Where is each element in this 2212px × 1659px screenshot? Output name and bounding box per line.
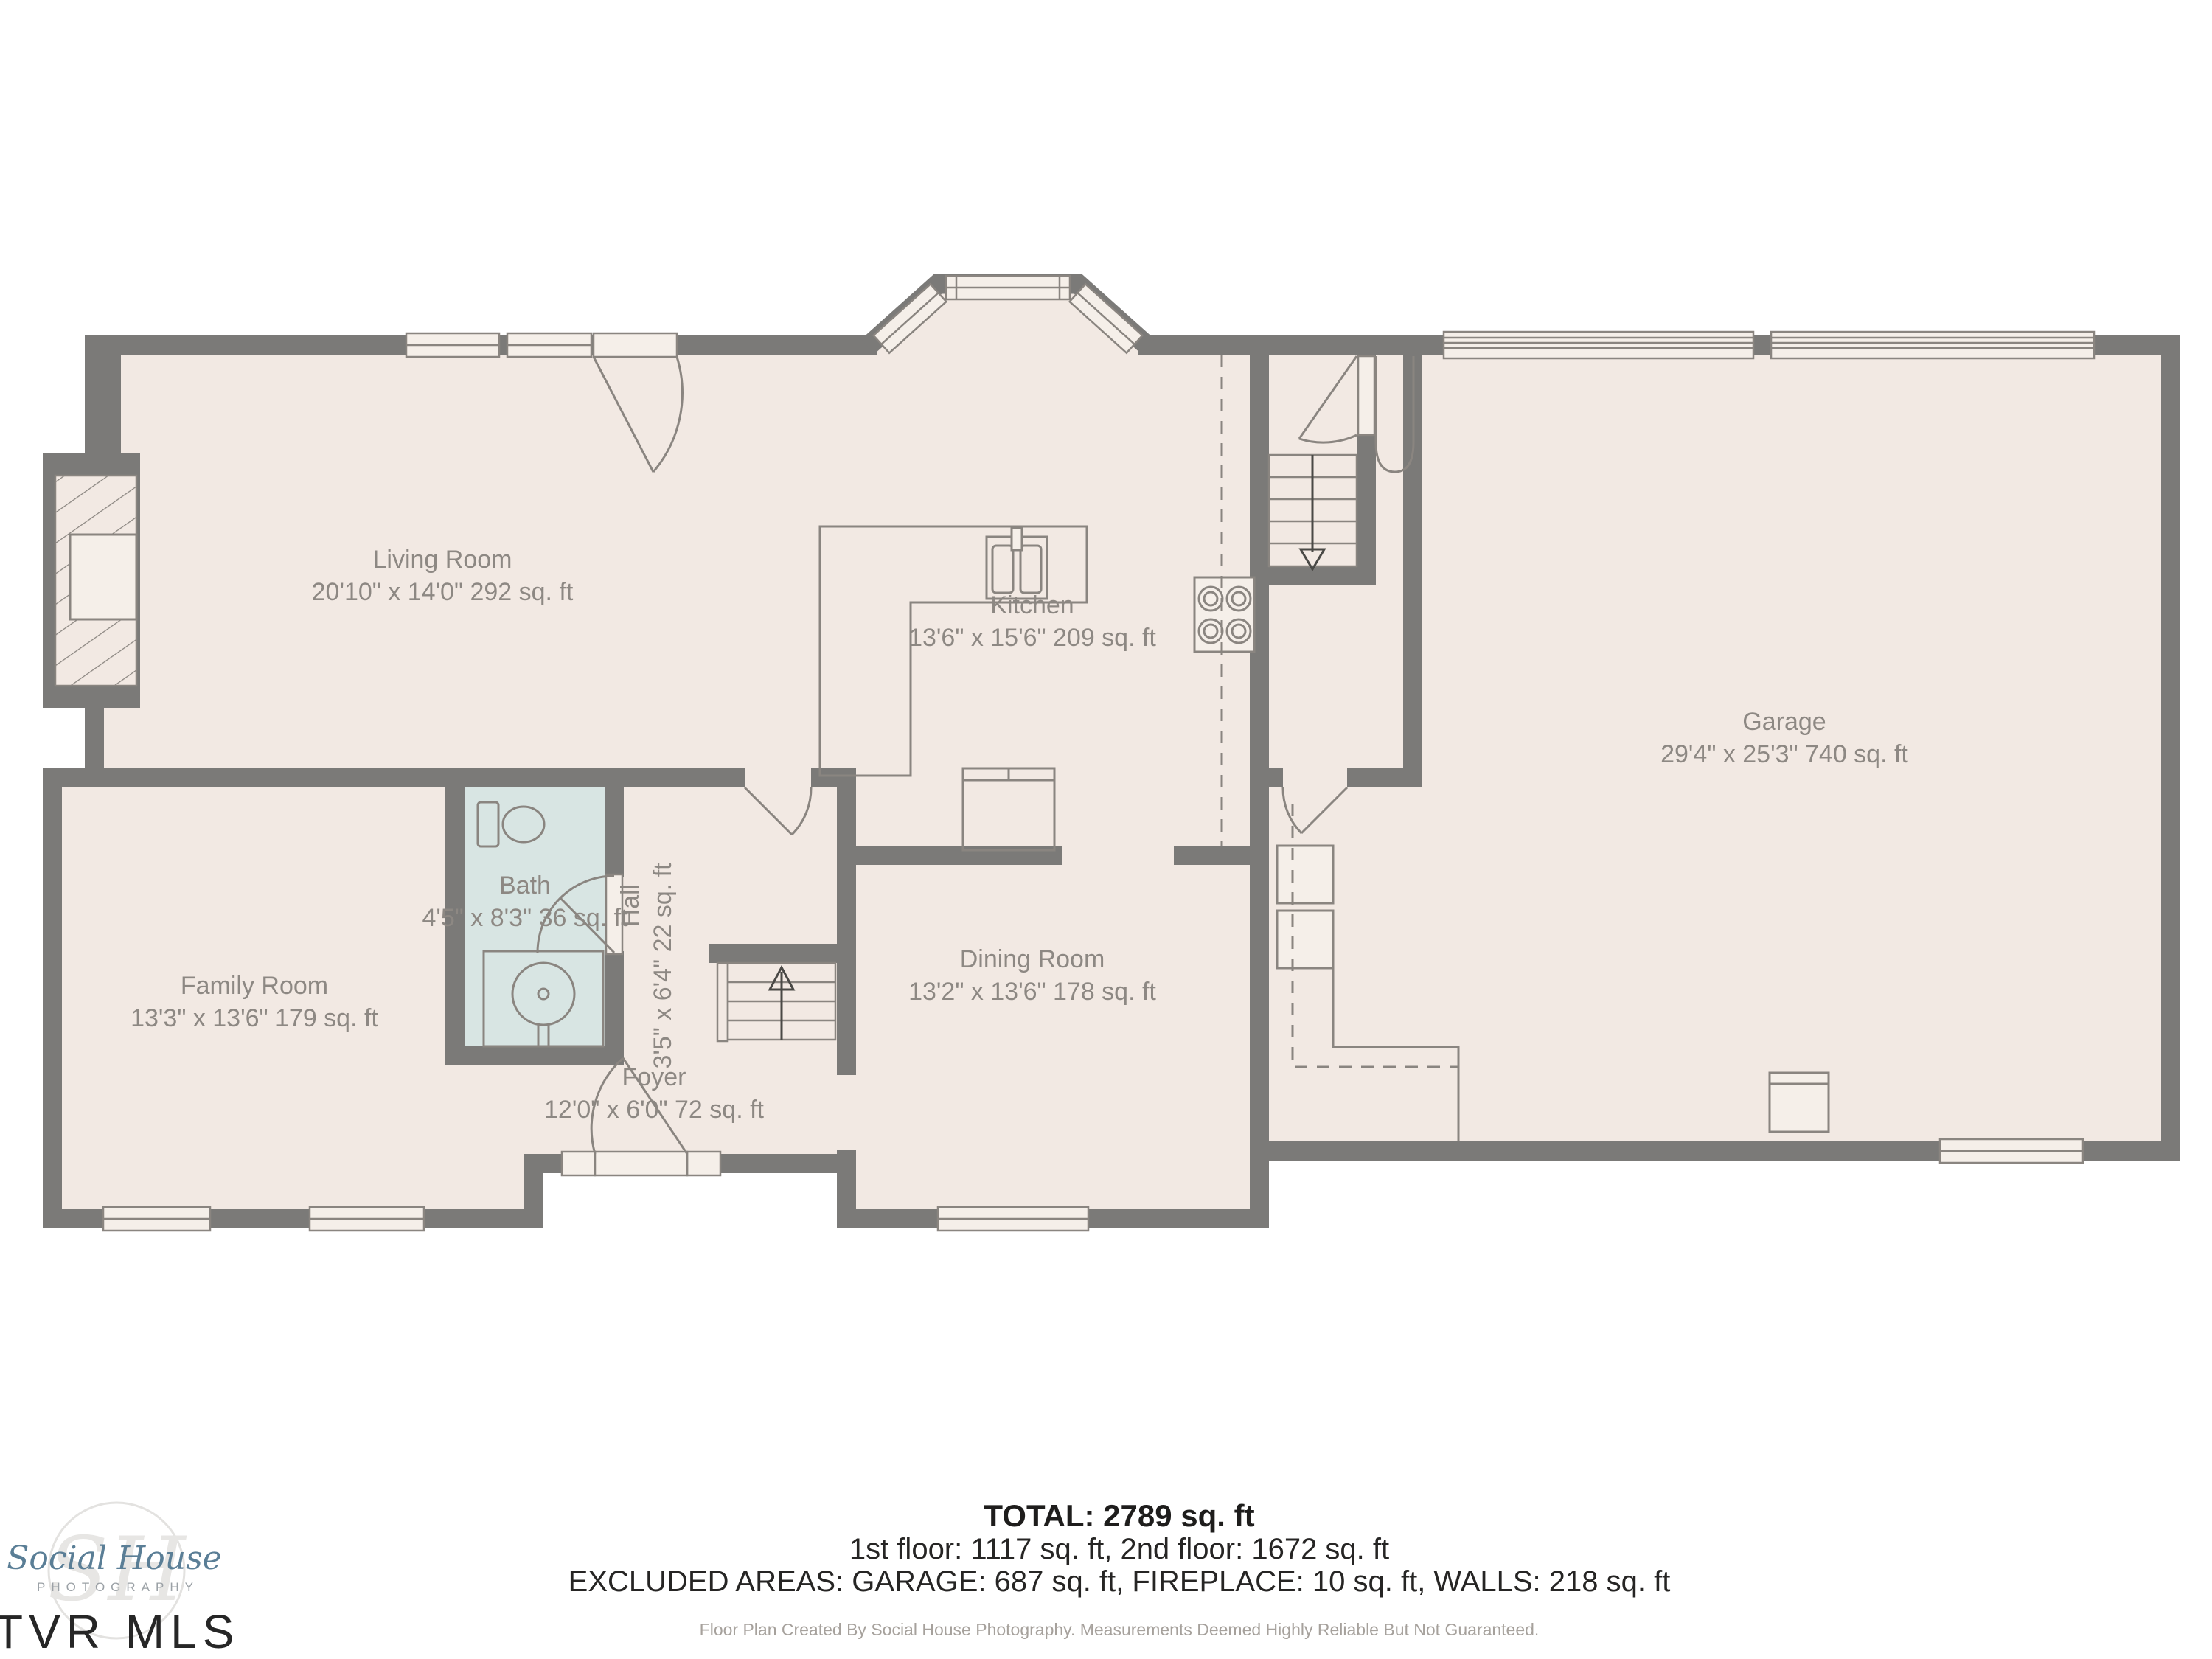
bay-window-center xyxy=(946,276,1070,299)
foyer-label: Foyer xyxy=(622,1063,686,1091)
floor-plan: Living Room 20'10" x 14'0" 292 sq. ft Ki… xyxy=(0,0,2212,1659)
dining-room-label: Dining Room xyxy=(960,945,1105,973)
garage-door-2 xyxy=(1771,332,2094,358)
living-window-1 xyxy=(406,333,499,357)
tvr-mls-watermark: TVR MLS xyxy=(0,1605,240,1658)
garage-door-1 xyxy=(1444,332,1753,358)
branding-block: SH Social House PHOTOGRAPHY TVR MLS xyxy=(0,1503,240,1658)
floor-areas-text: 1st floor: 1117 sq. ft, 2nd floor: 1672 … xyxy=(849,1533,1389,1565)
foyer-dims: 12'0" x 6'0" 72 sq. ft xyxy=(544,1096,765,1124)
hall-label: Hall xyxy=(616,884,644,928)
garage-post xyxy=(1770,1073,1829,1132)
utility-unit-2 xyxy=(1277,911,1333,968)
garage-dims: 29'4" x 25'3" 740 sq. ft xyxy=(1660,740,1908,768)
hall-dims: 3'5" x 6'4" 22 sq. ft xyxy=(649,863,677,1069)
family-window-2 xyxy=(310,1207,424,1231)
front-door-sidelight-right xyxy=(687,1152,720,1175)
floor-plan-page: Living Room 20'10" x 14'0" 292 sq. ft Ki… xyxy=(0,0,2212,1659)
family-room-label: Family Room xyxy=(181,972,328,1000)
total-area-text: TOTAL: 2789 sq. ft xyxy=(984,1498,1254,1533)
porch-recess xyxy=(543,1173,837,1228)
living-room-dims: 20'10" x 14'0" 292 sq. ft xyxy=(312,578,574,606)
excluded-areas-text: EXCLUDED AREAS: GARAGE: 687 sq. ft, FIRE… xyxy=(568,1565,1671,1598)
room-living-kitchen-floor xyxy=(85,335,1269,787)
bath-dims: 4'5" x 8'3" 36 sq. ft xyxy=(422,904,628,932)
fireplace-icon xyxy=(55,476,136,686)
living-room-label: Living Room xyxy=(373,546,512,574)
kitchen-dining-opening xyxy=(1062,846,1174,865)
family-window-1 xyxy=(103,1207,210,1231)
social-house-logo: Social House xyxy=(7,1540,221,1577)
dining-room-dims: 13'2" x 13'6" 178 sq. ft xyxy=(908,978,1156,1006)
dining-window xyxy=(938,1207,1088,1231)
garage-window xyxy=(1940,1139,2083,1163)
bath-label: Bath xyxy=(499,872,551,900)
living-window-2 xyxy=(507,333,591,357)
disclaimer-text: Floor Plan Created By Social House Photo… xyxy=(700,1620,1540,1639)
utility-unit-1 xyxy=(1277,846,1333,903)
garage-label: Garage xyxy=(1742,708,1826,736)
foyer-dining-opening xyxy=(837,1075,856,1150)
summary-block: TOTAL: 2789 sq. ft 1st floor: 1117 sq. f… xyxy=(568,1498,1671,1639)
family-room-dims: 13'3" x 13'6" 179 sq. ft xyxy=(131,1004,378,1032)
kitchen-label: Kitchen xyxy=(990,591,1074,619)
photography-label: PHOTOGRAPHY xyxy=(37,1580,199,1594)
kitchen-dims: 13'6" x 15'6" 209 sq. ft xyxy=(908,624,1156,652)
stove-icon xyxy=(1194,577,1254,652)
front-door-sidelight-left xyxy=(562,1152,595,1175)
